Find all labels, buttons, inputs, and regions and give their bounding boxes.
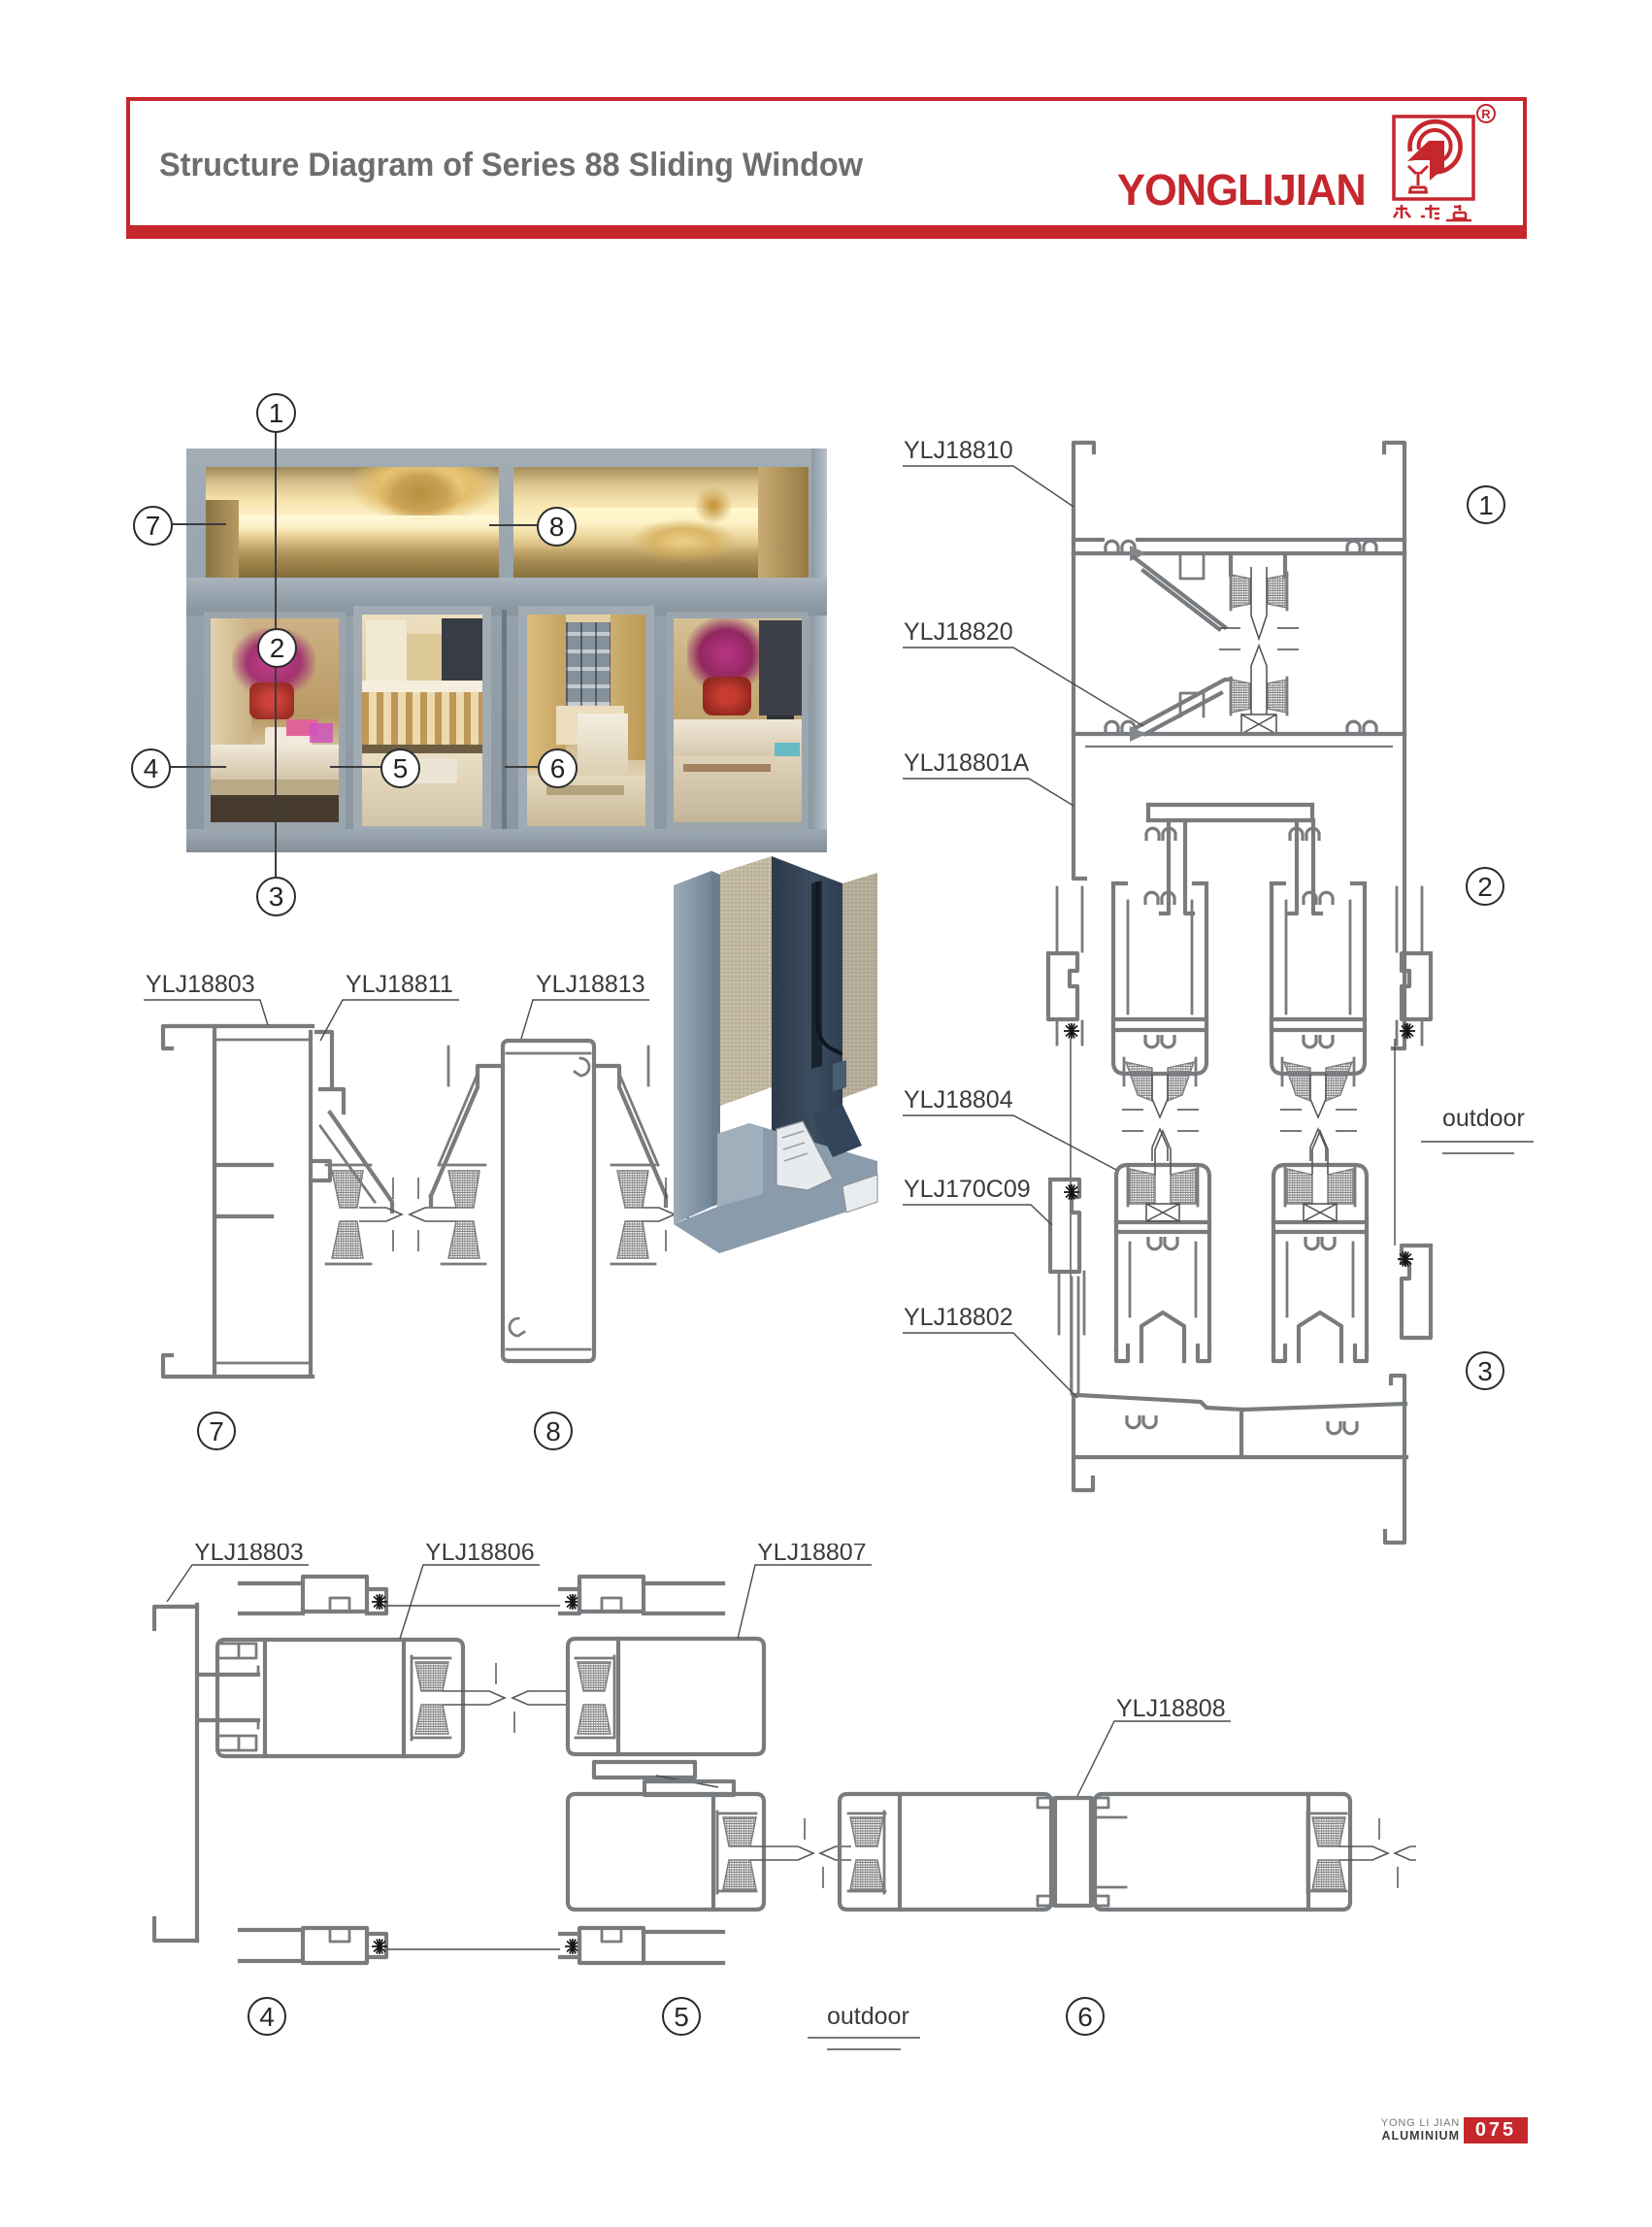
- svg-text:YLJ18811: YLJ18811: [346, 971, 453, 998]
- svg-text:4: 4: [259, 2002, 275, 2032]
- svg-text:3: 3: [1477, 1356, 1493, 1386]
- svg-text:YLJ18808: YLJ18808: [1116, 1695, 1226, 1722]
- svg-text:YLJ18810: YLJ18810: [904, 437, 1013, 464]
- svg-text:2: 2: [1477, 872, 1493, 902]
- svg-text:6: 6: [1077, 2002, 1093, 2032]
- svg-text:7: 7: [209, 1416, 224, 1446]
- svg-text:5: 5: [674, 2002, 689, 2032]
- svg-text:YLJ18804: YLJ18804: [904, 1086, 1013, 1113]
- svg-text:8: 8: [545, 1416, 561, 1446]
- svg-text:YLJ18820: YLJ18820: [904, 618, 1013, 646]
- svg-text:YLJ170C09: YLJ170C09: [904, 1176, 1031, 1203]
- svg-text:outdoor: outdoor: [827, 2003, 909, 2030]
- svg-text:1: 1: [1478, 490, 1494, 520]
- svg-text:outdoor: outdoor: [1442, 1105, 1525, 1132]
- svg-text:YLJ18813: YLJ18813: [536, 971, 645, 998]
- svg-text:YLJ18807: YLJ18807: [757, 1544, 867, 1566]
- svg-text:YLJ18803: YLJ18803: [194, 1544, 304, 1566]
- svg-text:YLJ18801A: YLJ18801A: [904, 749, 1030, 777]
- svg-text:YLJ18802: YLJ18802: [904, 1304, 1013, 1331]
- svg-text:YLJ18803: YLJ18803: [146, 971, 255, 998]
- svg-text:YLJ18806: YLJ18806: [425, 1544, 535, 1566]
- svg-text:R: R: [1481, 107, 1491, 121]
